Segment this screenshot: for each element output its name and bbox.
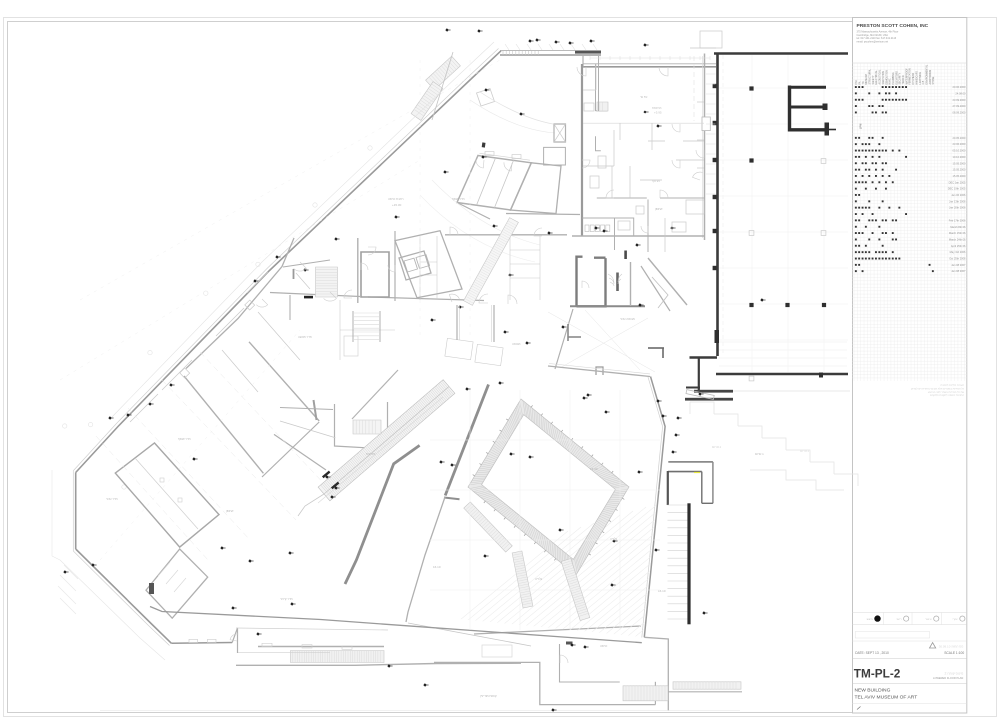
svg-text:טוי גד: טוי גד (640, 95, 647, 99)
svg-text:ENVIRONMENTAL: ENVIRONMENTAL (925, 64, 928, 84)
svg-text:T.K: T.K (863, 81, 865, 85)
svg-text:PA: PA (858, 81, 861, 84)
svg-text:LIGHTNING: LIGHTNING (920, 72, 922, 85)
svg-text:מדרגות: מדרגות (366, 452, 375, 456)
svg-text:Feb 17th 2006: Feb 17th 2006 (949, 218, 966, 222)
svg-text:רחבת כניסה: רחבת כניסה (388, 197, 404, 201)
svg-text:SCALE 1:100: SCALE 1:100 (944, 651, 964, 655)
svg-text:SANITATION: SANITATION (882, 71, 885, 85)
svg-text:MUSEUM: MUSEUM (866, 74, 868, 84)
svg-text:AUDITORIUM: AUDITORIUM (929, 70, 932, 85)
svg-text:גלריה: גלריה (610, 537, 618, 541)
svg-text:24.08.00: 24.08.00 (955, 91, 966, 95)
svg-text:STRUCTURAL: STRUCTURAL (869, 68, 872, 84)
svg-text:email: pscohen@verizon.net: email: pscohen@verizon.net (857, 40, 889, 43)
svg-text:רישוי: רישוי (896, 618, 902, 621)
svg-text:הערות כלליות לתכנית: הערות כלליות לתכנית (940, 383, 964, 387)
svg-text:15.05.2000: 15.05.2000 (953, 174, 967, 178)
svg-text:DEMOLITION: DEMOLITION (886, 70, 888, 85)
svg-text:March 8th 06: March 8th 06 (950, 225, 966, 229)
svg-text:16.10: 16.10 (658, 589, 666, 593)
svg-text:KITCHENS: KITCHENS (913, 72, 915, 84)
svg-text:2 מינוס קומה: 2 מינוס קומה (945, 672, 964, 676)
svg-text:ELECTRICAL: ELECTRICAL (875, 70, 878, 85)
svg-text:ג טרום: ג טרום (800, 449, 810, 453)
svg-text:10.10.2000: 10.10.2000 (953, 155, 967, 159)
svg-text:מרתף: מרתף (652, 179, 660, 183)
svg-text:את כל המידות באתר לפני הביצוע: את כל המידות באתר לפני הביצוע (928, 390, 964, 394)
svg-text:27.09.2000: 27.09.2000 (953, 104, 967, 108)
svg-text:SAFETY: SAFETY (872, 75, 875, 84)
svg-text:אישור: אישור (925, 618, 932, 621)
svg-text:NEW BUILDING: NEW BUILDING (855, 688, 891, 694)
svg-text:Jan 20th 2006: Jan 20th 2006 (949, 206, 966, 210)
svg-text:כל המידות במטרים אלא אם צוין א: כל המידות במטרים אלא אם צוין אחרת ויש לב… (911, 386, 964, 390)
svg-text:ג טרום: ג טרום (712, 445, 722, 449)
svg-text:אחסון: אחסון (655, 207, 663, 211)
svg-text:מס הגשה 30.09.10: מס הגשה 30.09.10 (939, 644, 964, 648)
svg-text:15.05.2000: 15.05.2000 (953, 168, 967, 172)
svg-text:ביצוע: ביצוע (867, 618, 873, 621)
svg-text:TEL AVIV MUSEUM OF ART: TEL AVIV MUSEUM OF ART (855, 695, 918, 701)
svg-text:20.05.2000: 20.05.2000 (953, 136, 967, 140)
svg-text:23.09.2000: 23.09.2000 (953, 98, 967, 102)
svg-text:March 24th 06: March 24th 06 (949, 238, 966, 242)
svg-text:WATERPROOF: WATERPROOF (905, 68, 908, 85)
svg-text:Jan 06 2006: Jan 06 2006 (951, 193, 966, 197)
svg-text:עקרי: עקרי (952, 618, 958, 621)
svg-text:חדר קירור: חדר קירור (280, 597, 293, 601)
svg-text:23.06.2000: 23.06.2000 (953, 142, 967, 146)
svg-text:DEC 19th 2005: DEC 19th 2005 (948, 187, 966, 191)
svg-text:20.06.2000: 20.06.2000 (953, 85, 967, 89)
svg-text:Oct 25th 2006: Oct 25th 2006 (949, 257, 966, 261)
svg-text:HVAC: HVAC (889, 78, 892, 85)
svg-text:PRESTON SCOTT COHEN, INC: PRESTON SCOTT COHEN, INC (857, 23, 929, 29)
svg-text:TM-PL-2: TM-PL-2 (854, 667, 901, 681)
svg-text:FERMETATION: FERMETATION (909, 68, 912, 84)
svg-text:ELEVATORS: ELEVATORS (895, 71, 898, 85)
svg-text:HANDICAPS: HANDICAPS (915, 71, 918, 85)
svg-text:May 3rd 2006: May 3rd 2006 (950, 250, 966, 254)
svg-text:C.B: C.B (923, 80, 925, 84)
svg-text:Jan 08 2007: Jan 08 2007 (951, 263, 966, 267)
svg-text:מבואה: מבואה (512, 342, 520, 346)
svg-text:Jan 13th 2006: Jan 13th 2006 (949, 199, 966, 203)
svg-text:+15.30: +15.30 (392, 203, 402, 207)
svg-text:LOWERED FLOOR PLAN: LOWERED FLOOR PLAN (933, 676, 963, 680)
svg-text:התכנית כפופה לתקנות ולתקנים: התכנית כפופה לתקנות ולתקנים (930, 393, 964, 397)
svg-text:April 25th 06: April 25th 06 (951, 244, 966, 248)
svg-text:SECURITY: SECURITY (900, 72, 902, 84)
svg-text:STONE: STONE (933, 76, 935, 84)
svg-text:חדר טכני: חדר טכני (106, 497, 118, 501)
svg-text:מרפסת: מרפסת (652, 106, 661, 110)
svg-text:ג טרום: ג טרום (755, 452, 764, 456)
svg-text:גלריה: גלריה (535, 577, 543, 581)
svg-text:Jan 08 2007: Jan 08 2007 (951, 269, 966, 273)
svg-text:15.30: 15.30 (590, 467, 598, 471)
svg-text:מבואה טכני: מבואה טכני (620, 317, 635, 321)
svg-text:05.10.2000: 05.10.2000 (953, 149, 967, 153)
svg-text:חדר אוסף: חדר אוסף (452, 197, 465, 201)
svg-text:אחסון: אחסון (226, 509, 234, 513)
svg-text:TRAFFIC: TRAFFIC (902, 74, 905, 84)
svg-text:08.09.2000: 08.09.2000 (953, 111, 967, 115)
svg-text:DEC Jan 2005: DEC Jan 2005 (949, 180, 966, 184)
svg-text:חדר תצוגה: חדר תצוגה (298, 335, 312, 339)
svg-text:PSC: PSC (856, 79, 858, 84)
svg-text:DATE: SEPT 13 , 2010: DATE: SEPT 13 , 2010 (855, 651, 889, 655)
svg-text:כניסה: כניסה (600, 644, 608, 648)
svg-text:16.10: 16.10 (433, 565, 441, 569)
svg-text:PLUMBING: PLUMBING (893, 72, 895, 84)
svg-text:March 15th 06: March 15th 06 (949, 231, 966, 235)
svg-text:חדר אוסף: חדר אוסף (178, 437, 191, 441)
svg-text:+5.95: +5.95 (654, 111, 662, 115)
svg-text:קופות מודיעין: קופות מודיעין (480, 694, 497, 698)
svg-text:15.05.2000: 15.05.2000 (953, 161, 967, 165)
svg-text:ACOUSTICAL: ACOUSTICAL (879, 69, 882, 84)
svg-text:LPM: LPM (859, 124, 863, 129)
